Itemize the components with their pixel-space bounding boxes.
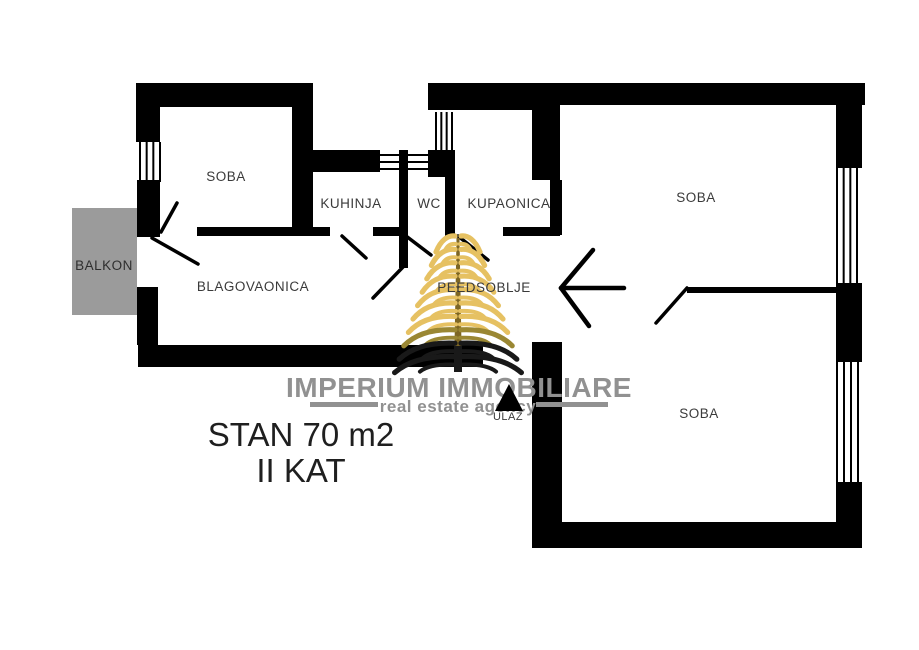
apartment-size-text: STAN 70 m2 xyxy=(208,416,394,453)
floorplan-image: IMPERIUM IMMOBILIAREreal estate agencyUL… xyxy=(0,0,919,650)
apartment-floor-text: II KAT xyxy=(256,452,345,489)
wall-segment xyxy=(428,83,560,110)
wall-segment xyxy=(136,83,160,142)
room-label-soba-top-left: SOBA xyxy=(206,169,246,184)
wall-segment xyxy=(373,227,407,236)
entrance-label: ULAZ xyxy=(493,411,523,423)
room-label-wc: WC xyxy=(417,196,441,211)
tree-trunk-base xyxy=(454,346,462,372)
wall-segment xyxy=(428,150,455,177)
wall-segment xyxy=(532,107,560,180)
room-label-balkon: BALKON xyxy=(75,258,133,273)
wall-segment xyxy=(836,283,862,362)
wall-segment xyxy=(313,150,380,172)
wall-segment xyxy=(399,150,408,268)
wall-segment xyxy=(137,180,160,237)
room-label-kuhinja: KUHINJA xyxy=(320,196,381,211)
room-label-soba-bottom-right: SOBA xyxy=(679,406,719,421)
wall-segment xyxy=(532,522,860,548)
room-label-blagovaonica: BLAGOVAONICA xyxy=(197,279,309,294)
wall-segment xyxy=(503,227,560,236)
floorplan-svg: IMPERIUM IMMOBILIAREreal estate agencyUL… xyxy=(0,0,919,650)
room-label-kupaonica: KUPAONICA xyxy=(467,196,550,211)
wall-segment xyxy=(136,83,313,107)
wall-segment xyxy=(550,83,865,105)
room-label-predsoblje: PEEDSOBLJE xyxy=(437,280,531,295)
room-label-soba-top-right: SOBA xyxy=(676,190,716,205)
wall-segment xyxy=(836,83,862,168)
wall-segment xyxy=(550,180,562,235)
wall-segment xyxy=(445,177,455,236)
wall-segment xyxy=(292,107,313,236)
wall-segment xyxy=(532,342,562,522)
watermark-rule xyxy=(310,402,378,407)
watermark-rule xyxy=(536,402,608,407)
wall-segment xyxy=(137,287,158,345)
wall-segment xyxy=(687,287,837,293)
wall-segment xyxy=(197,227,330,236)
